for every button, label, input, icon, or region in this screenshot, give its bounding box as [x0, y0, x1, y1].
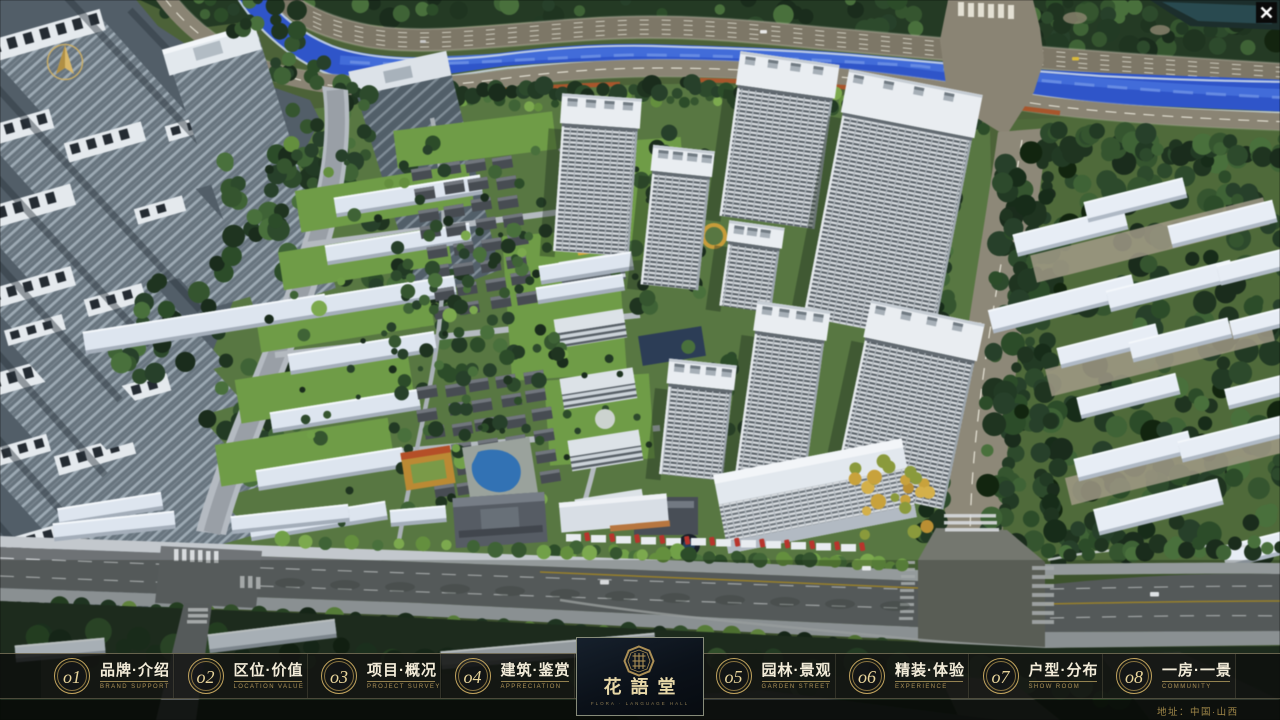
svg-text:FLORA · LANGUAGE HALL: FLORA · LANGUAGE HALL: [591, 701, 689, 706]
svg-text:花語堂: 花語堂: [604, 676, 685, 697]
